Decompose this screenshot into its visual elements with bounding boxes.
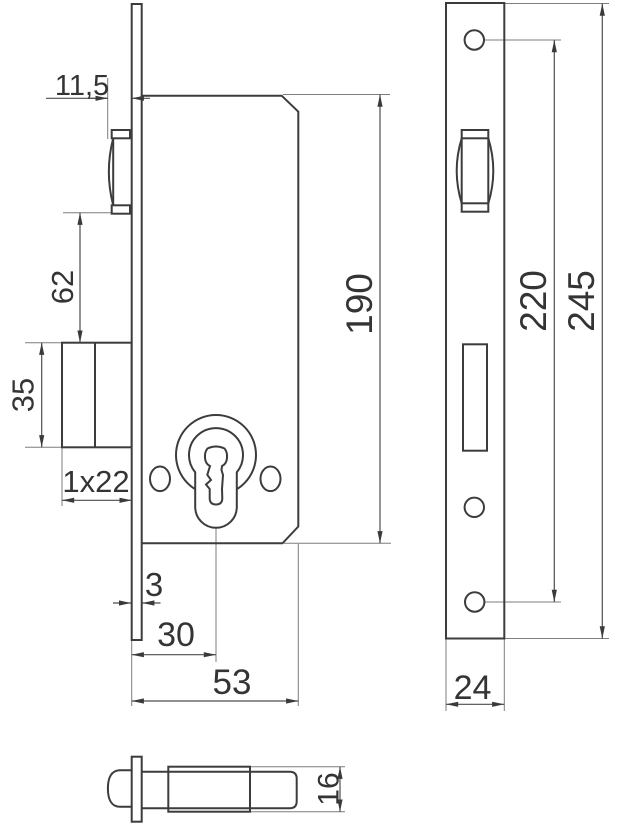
faceplate-side <box>132 4 142 640</box>
faceplate-bottom <box>132 757 142 822</box>
deadbolt-slot <box>463 344 487 450</box>
dimension-backset: 30 <box>132 616 216 655</box>
dim-label-deadbolt-throw: 1x22 <box>62 464 129 499</box>
dim-label-faceplate-length: 245 <box>561 270 602 332</box>
dimension-faceplate-length: 245 <box>561 4 602 639</box>
latch-bolt-nose <box>108 770 132 807</box>
bottom-view: 16 <box>108 757 346 822</box>
dim-label-backset: 30 <box>157 616 195 654</box>
dimension-case-height: 190 <box>339 95 380 544</box>
dimension-deadbolt-height: 35 <box>6 343 42 448</box>
dim-label-faceplate-thickness: 3 <box>145 566 163 603</box>
latch-strip-bottom <box>462 203 489 211</box>
latch-strip-top <box>462 130 489 138</box>
fixing-hole-right <box>261 467 281 492</box>
dimension-latch-to-deadbolt: 62 <box>45 213 80 343</box>
dimension-faceplate-width: 24 <box>446 669 504 707</box>
dimension-case-depth: 53 <box>132 663 299 702</box>
latch-guide-top <box>112 130 130 138</box>
dimension-deadbolt-throw: 1x22 <box>62 464 132 500</box>
dimension-case-thickness: 16 <box>313 767 346 812</box>
screw-hole-bottom <box>465 592 484 611</box>
dim-label-case-height: 190 <box>339 273 380 335</box>
latch-guide-bottom <box>112 205 130 213</box>
screw-hole-middle <box>465 498 484 517</box>
side-view: 11,5 62 35 1x22 3 30 <box>6 4 392 706</box>
dim-label-case-depth: 53 <box>213 663 252 702</box>
front-view: 220 245 24 <box>446 3 609 711</box>
dim-label-latch-projection: 11,5 <box>55 70 109 102</box>
faceplate-front <box>446 3 504 639</box>
deadbolt-side <box>62 343 132 448</box>
dimension-screw-hole-spacing: 220 <box>513 40 554 602</box>
fixing-hole-left <box>150 467 170 492</box>
dim-label-case-thickness: 16 <box>313 772 346 805</box>
technical-drawing-page: 11,5 62 35 1x22 3 30 <box>0 0 617 825</box>
dim-label-faceplate-width: 24 <box>454 669 492 707</box>
screw-hole-top <box>465 30 484 49</box>
case-cover-band <box>168 767 250 812</box>
lock-case-bottom-outline <box>142 772 297 809</box>
dim-label-screw-hole-spacing: 220 <box>513 270 554 332</box>
dim-label-latch-to-deadbolt: 62 <box>45 270 80 304</box>
dim-label-deadbolt-height: 35 <box>6 378 41 412</box>
mortise-lock-drawing: 11,5 62 35 1x22 3 30 <box>0 0 617 825</box>
